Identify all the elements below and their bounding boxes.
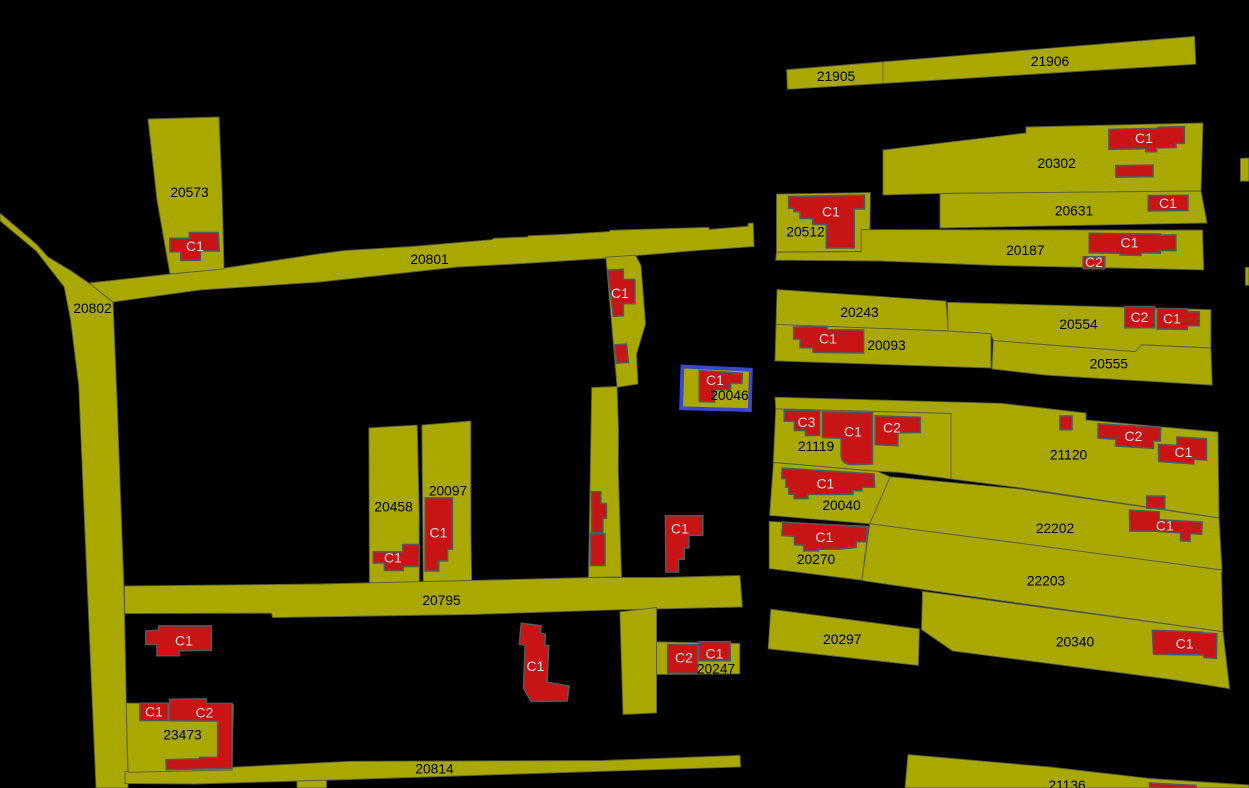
svg-text:C1: C1 (816, 476, 834, 492)
svg-text:C1: C1 (145, 704, 163, 720)
svg-text:C1: C1 (815, 529, 833, 545)
svg-text:21120: 21120 (1050, 448, 1088, 463)
svg-text:20097: 20097 (429, 484, 467, 499)
svg-text:C1: C1 (671, 521, 689, 537)
svg-text:C2: C2 (1125, 428, 1143, 444)
svg-text:C1: C1 (1121, 235, 1139, 251)
svg-text:C2: C2 (1131, 309, 1149, 325)
svg-text:C2: C2 (883, 420, 901, 436)
svg-text:21136: 21136 (1048, 778, 1086, 788)
svg-text:C1: C1 (822, 204, 840, 220)
svg-text:20802: 20802 (73, 301, 111, 316)
svg-text:C1: C1 (430, 524, 448, 540)
svg-text:21905: 21905 (817, 69, 856, 84)
svg-text:20040: 20040 (822, 498, 861, 513)
svg-text:20512: 20512 (786, 225, 824, 240)
svg-text:C1: C1 (819, 331, 837, 347)
svg-text:20554: 20554 (1059, 317, 1098, 332)
svg-text:C1: C1 (1159, 195, 1177, 211)
svg-text:C1: C1 (1163, 311, 1181, 327)
svg-text:C1: C1 (1175, 444, 1193, 460)
svg-text:20801: 20801 (410, 252, 448, 267)
svg-text:20573: 20573 (170, 185, 209, 200)
svg-text:C1: C1 (175, 633, 193, 649)
svg-text:20302: 20302 (1037, 156, 1075, 171)
svg-text:C1: C1 (1176, 636, 1194, 652)
svg-text:21119: 21119 (798, 439, 835, 454)
svg-text:20093: 20093 (867, 338, 906, 353)
svg-text:C1: C1 (611, 285, 629, 301)
svg-text:20340: 20340 (1056, 635, 1095, 650)
svg-text:C1: C1 (527, 658, 545, 674)
svg-text:22202: 22202 (1036, 521, 1074, 536)
svg-text:22203: 22203 (1027, 574, 1066, 589)
svg-text:C3: C3 (798, 414, 816, 430)
svg-text:20631: 20631 (1055, 204, 1093, 219)
svg-text:20270: 20270 (797, 552, 836, 567)
svg-text:20795: 20795 (422, 593, 461, 608)
svg-text:20187: 20187 (1006, 243, 1044, 258)
svg-text:20297: 20297 (823, 632, 861, 647)
svg-text:C1: C1 (844, 424, 862, 440)
svg-text:C1: C1 (706, 645, 724, 661)
svg-text:C1: C1 (1156, 518, 1174, 534)
svg-text:20046: 20046 (710, 388, 749, 403)
svg-text:20555: 20555 (1090, 357, 1129, 372)
svg-text:C1: C1 (384, 550, 402, 566)
svg-text:20458: 20458 (374, 500, 413, 515)
svg-text:20243: 20243 (840, 305, 879, 320)
svg-text:20814: 20814 (415, 762, 454, 777)
svg-text:23473: 23473 (163, 728, 202, 743)
svg-text:C2: C2 (1085, 254, 1103, 270)
svg-text:20247: 20247 (697, 662, 735, 677)
svg-text:C1: C1 (186, 238, 204, 254)
svg-text:C2: C2 (675, 650, 693, 666)
svg-text:C2: C2 (196, 705, 214, 721)
svg-text:C1: C1 (1135, 130, 1153, 146)
svg-text:C1: C1 (706, 372, 724, 388)
svg-text:21906: 21906 (1031, 54, 1070, 69)
